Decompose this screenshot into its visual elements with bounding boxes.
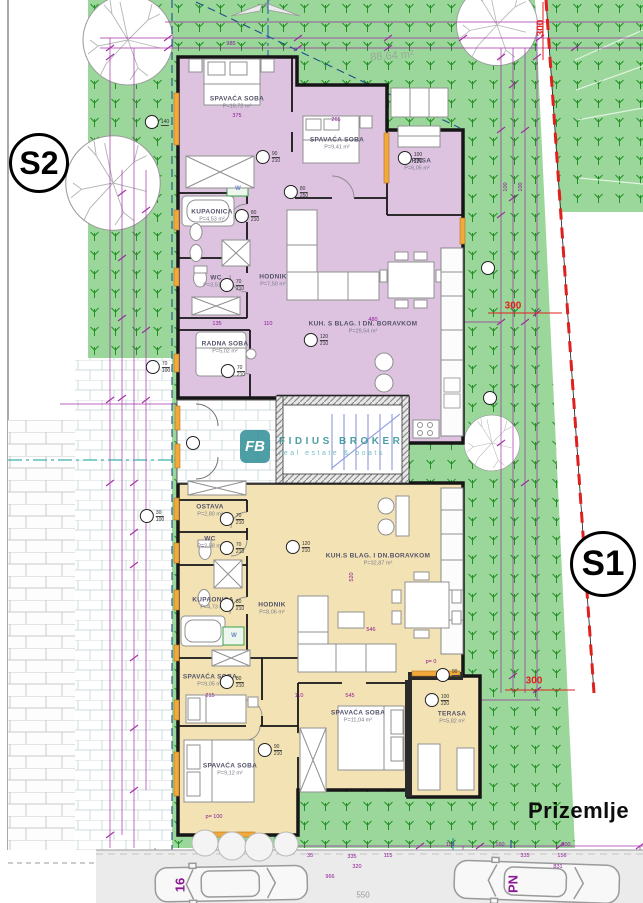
watermark-text: FIDIUS BROKER real estate & boats — [279, 436, 403, 457]
watermark-title: FIDIUS BROKER — [279, 436, 403, 447]
floor-title: Prizemlje — [528, 798, 629, 824]
watermark-subtitle: real estate & boats — [279, 450, 403, 457]
shelf-ostava — [188, 481, 246, 495]
shower-s1 — [214, 560, 242, 588]
floor-plan: SPAVAĆA SOBAP=10,72 m²SPAVAĆA SOBAP=9,41… — [0, 0, 643, 903]
watermark-logo: FB — [240, 430, 270, 463]
unit-badge-s2: S2 — [9, 133, 69, 193]
paved-path — [8, 358, 172, 850]
unit-badge-s1: S1 — [570, 531, 636, 597]
watermark: FB FIDIUS BROKER real estate & boats — [240, 430, 403, 463]
car — [155, 861, 308, 903]
shower-s2 — [222, 240, 250, 266]
